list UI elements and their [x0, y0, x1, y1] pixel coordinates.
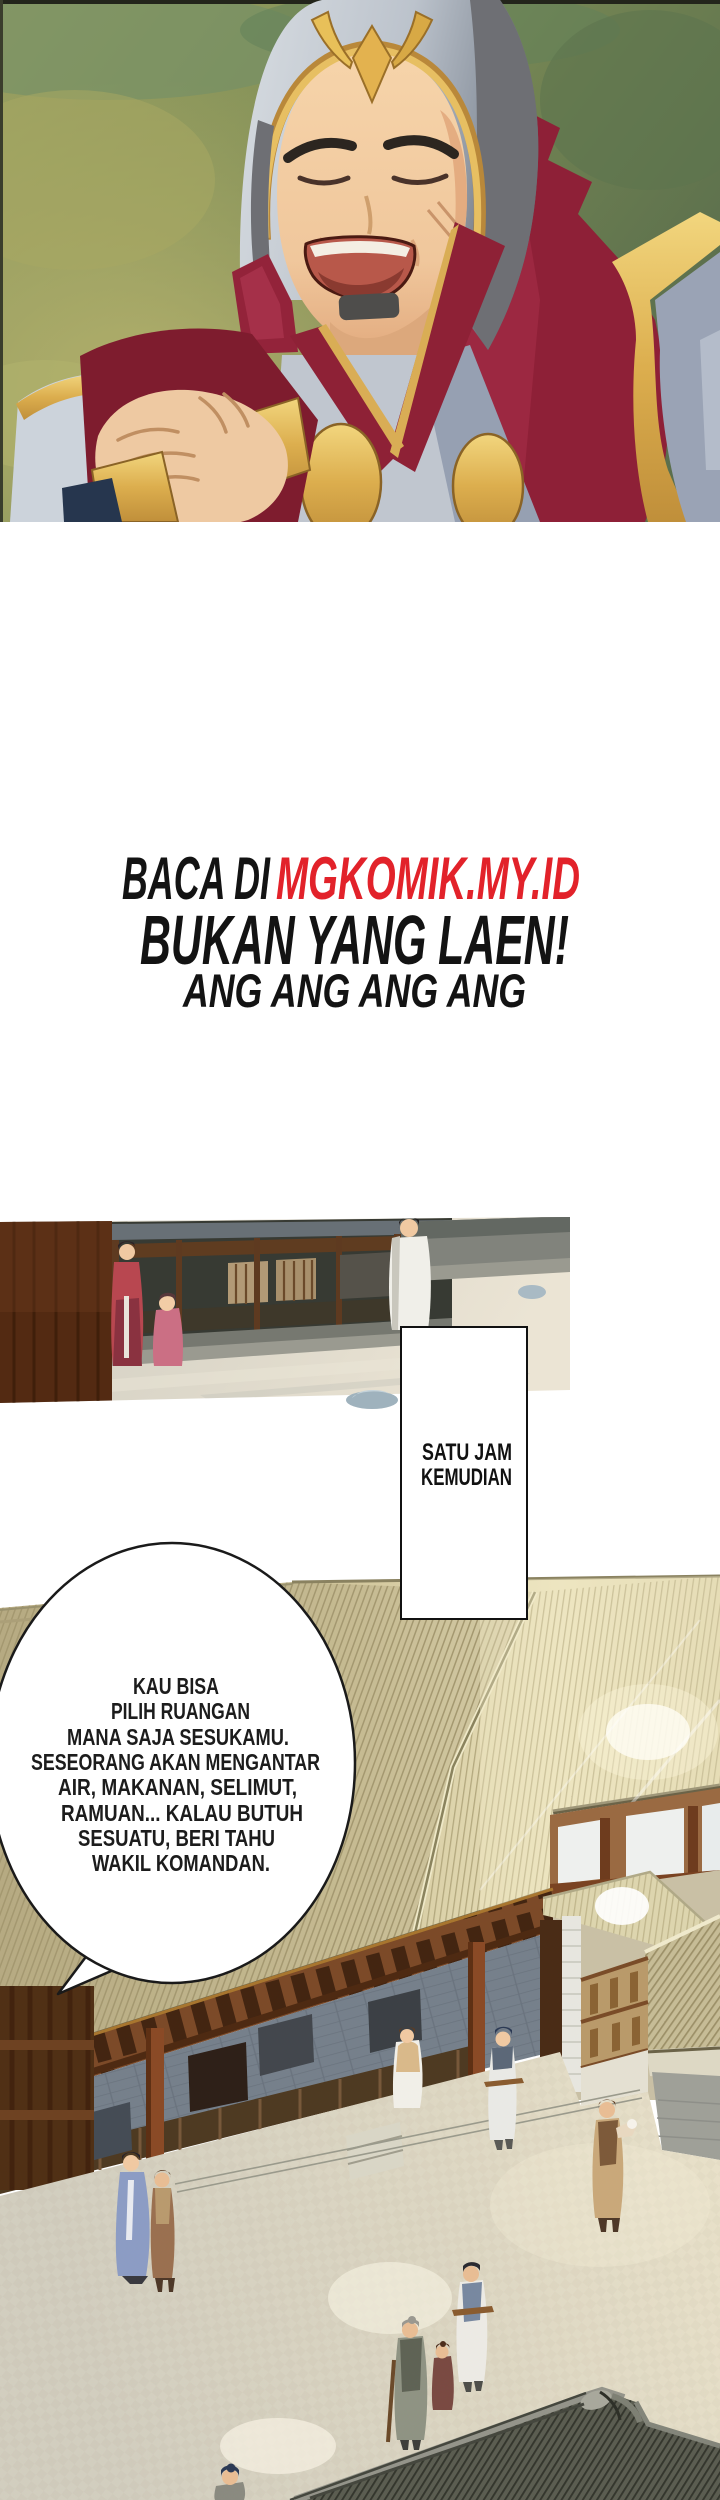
svg-text:MANA SAJA SESUKAMU.: MANA SAJA SESUKAMU. [67, 1724, 289, 1750]
svg-text:KAU BISA: KAU BISA [133, 1673, 219, 1699]
svg-text:KEMUDIAN: KEMUDIAN [421, 1464, 512, 1491]
svg-text:SESUATU, BERI TAHU: SESUATU, BERI TAHU [78, 1825, 275, 1851]
svg-text:AIR, MAKANAN, SELIMUT,: AIR, MAKANAN, SELIMUT, [58, 1774, 297, 1800]
svg-text:PILIH RUANGAN: PILIH RUANGAN [111, 1698, 250, 1724]
svg-text:WAKIL KOMANDAN.: WAKIL KOMANDAN. [92, 1850, 270, 1876]
svg-text:ANG ANG ANG ANG: ANG ANG ANG ANG [182, 964, 526, 1017]
svg-text:SATU JAM: SATU JAM [422, 1439, 512, 1466]
svg-text:RAMUAN... KALAU BUTUH: RAMUAN... KALAU BUTUH [61, 1800, 303, 1826]
svg-text:SESEORANG AKAN MENGANTAR: SESEORANG AKAN MENGANTAR [31, 1749, 320, 1775]
